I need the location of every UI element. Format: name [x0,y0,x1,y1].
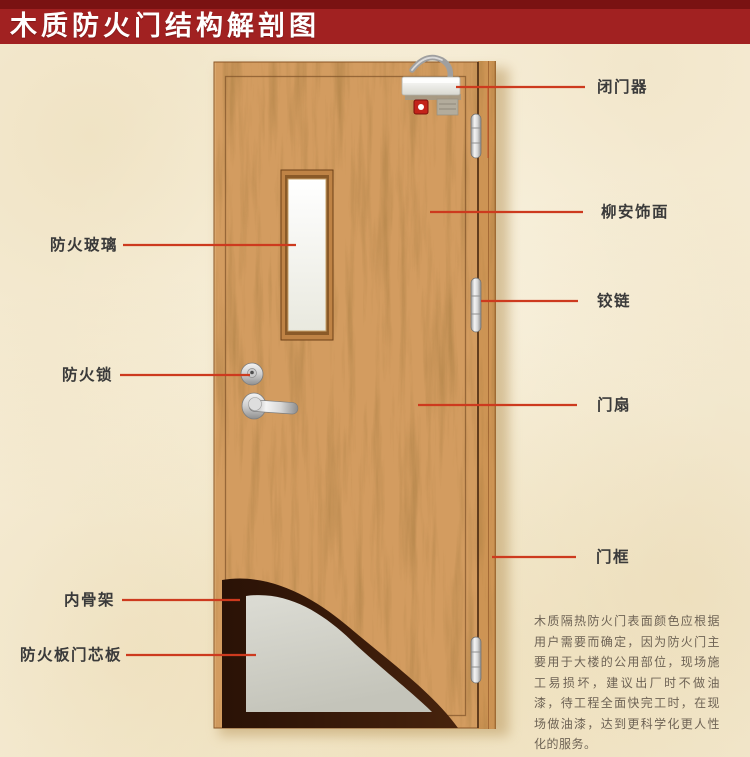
label-fire-lock: 防火锁 [62,367,113,384]
fire-glass-pane [288,179,326,331]
label-inner-skeleton: 内骨架 [64,592,115,609]
label-door-closer: 闭门器 [597,79,648,96]
hinge-middle [471,278,481,332]
poster: 木质防火门结构解剖图 [0,0,750,757]
strike-plate [437,99,458,115]
door-frame [478,61,496,729]
alarm-indicator [414,100,428,114]
label-door-frame: 门框 [596,549,630,566]
label-door-leaf: 门扇 [597,397,631,414]
label-veneer: 柳安饰面 [601,204,669,221]
hinge-top [471,114,481,158]
description-paragraph: 木质隔热防火门表面颜色应根据用户需要而确定，因为防火门主要用于大楼的公用部位，现… [534,611,720,755]
label-hinge: 铰链 [597,293,631,310]
label-core-panel: 防火板门芯板 [20,647,122,664]
vision-window [281,170,333,340]
hinge-bottom [471,637,481,683]
label-fire-glass: 防火玻璃 [50,237,118,254]
